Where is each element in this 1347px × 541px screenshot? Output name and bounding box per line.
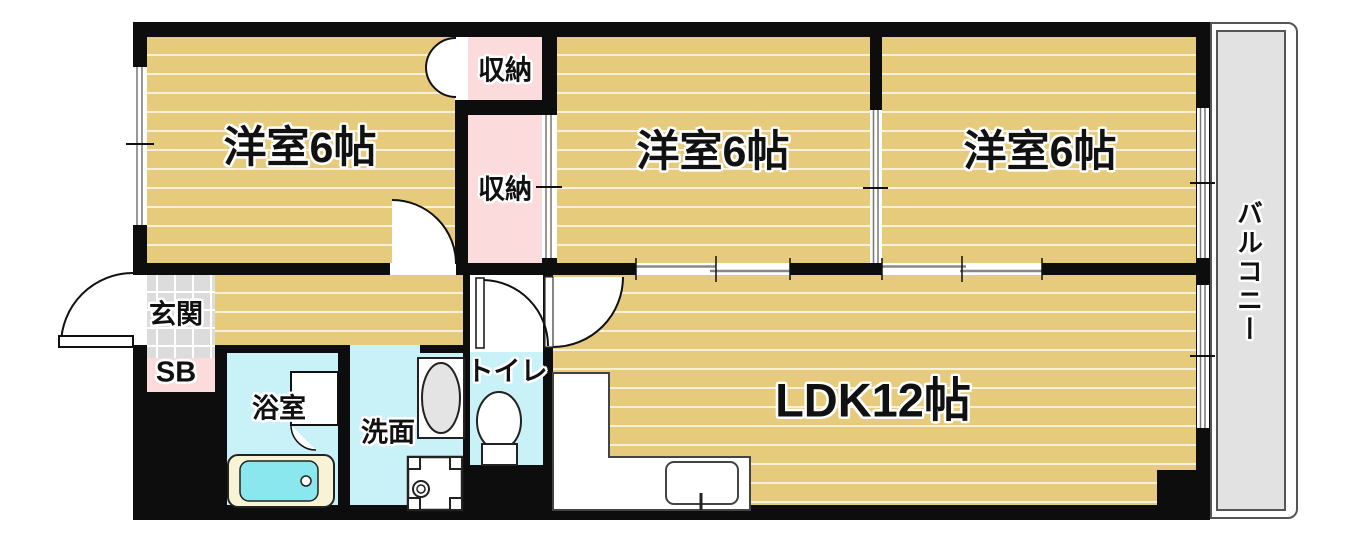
room3-sliding-door <box>882 263 1042 275</box>
washroom-label: 洗面 <box>361 411 415 450</box>
hallway-floor <box>215 275 463 345</box>
room2-label: 洋室6帖 <box>637 117 790 179</box>
room3-label: 洋室6帖 <box>964 117 1117 179</box>
toilet-back-block <box>463 465 553 520</box>
floor-plan: 洋室6帖 洋室6帖 洋室6帖 LDK12帖 収納 収納 玄関 SB 浴室 洗面 … <box>0 0 1347 541</box>
ldk-label: LDK12帖 <box>775 362 971 431</box>
wall-top <box>133 22 1210 37</box>
closet1-doorway <box>455 37 468 100</box>
ldk-balcony-window <box>1197 285 1209 428</box>
room1-left-window <box>133 67 147 225</box>
wall-bottom <box>133 505 1210 520</box>
wall-bath-top <box>215 345 350 353</box>
balcony-label: バルコニー <box>1231 200 1268 345</box>
closet2-sliding-door <box>542 115 557 258</box>
entrance-door-swing <box>61 273 133 345</box>
bath-floor <box>227 353 338 505</box>
shoe-box-label: SB <box>156 357 196 390</box>
partition-sliding-door <box>870 110 882 263</box>
closet2-label: 収納 <box>478 168 532 207</box>
wall-entrance-bath <box>215 345 227 520</box>
ldk-corner-pillar <box>1157 470 1196 505</box>
entrance-label: 玄関 <box>149 293 203 332</box>
bath-label: 浴室 <box>252 387 306 426</box>
entrance-door-panel <box>59 336 133 347</box>
room1-label: 洋室6帖 <box>224 113 377 175</box>
room1-doorway <box>390 263 456 275</box>
entrance-doorway <box>133 275 147 345</box>
toilet-vestibule <box>470 277 543 352</box>
wall-bath-washroom <box>338 345 350 520</box>
wall-room1-closet <box>455 100 468 263</box>
room3-balcony-window <box>1197 108 1209 258</box>
ldk-door-leaf <box>545 277 553 347</box>
wall-between-closets <box>468 100 542 115</box>
room2-sliding-door <box>636 263 790 275</box>
toilet-label: トイレ <box>467 350 548 389</box>
closet1-label: 収納 <box>478 49 532 88</box>
entrance-block <box>133 392 217 520</box>
